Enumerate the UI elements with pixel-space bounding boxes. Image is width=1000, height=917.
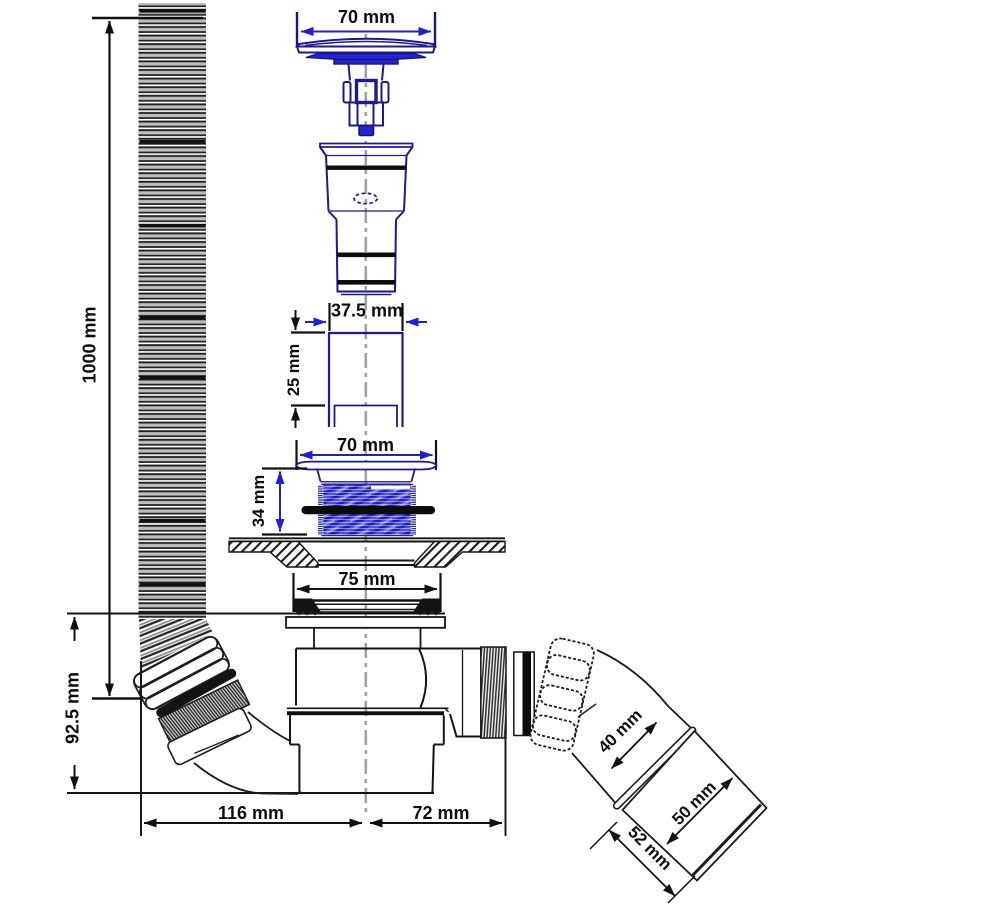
svg-text:70 mm: 70 mm xyxy=(337,435,394,455)
svg-text:92.5 mm: 92.5 mm xyxy=(63,672,83,744)
svg-text:1000 mm: 1000 mm xyxy=(80,306,100,383)
svg-text:40 mm: 40 mm xyxy=(594,705,646,757)
svg-text:70 mm: 70 mm xyxy=(338,7,395,27)
svg-text:72 mm: 72 mm xyxy=(412,803,469,823)
svg-text:37.5 mm: 37.5 mm xyxy=(331,301,403,321)
svg-text:25 mm: 25 mm xyxy=(285,344,303,396)
svg-text:75 mm: 75 mm xyxy=(338,569,395,589)
svg-text:116 mm: 116 mm xyxy=(218,803,284,823)
svg-text:34 mm: 34 mm xyxy=(250,475,268,527)
